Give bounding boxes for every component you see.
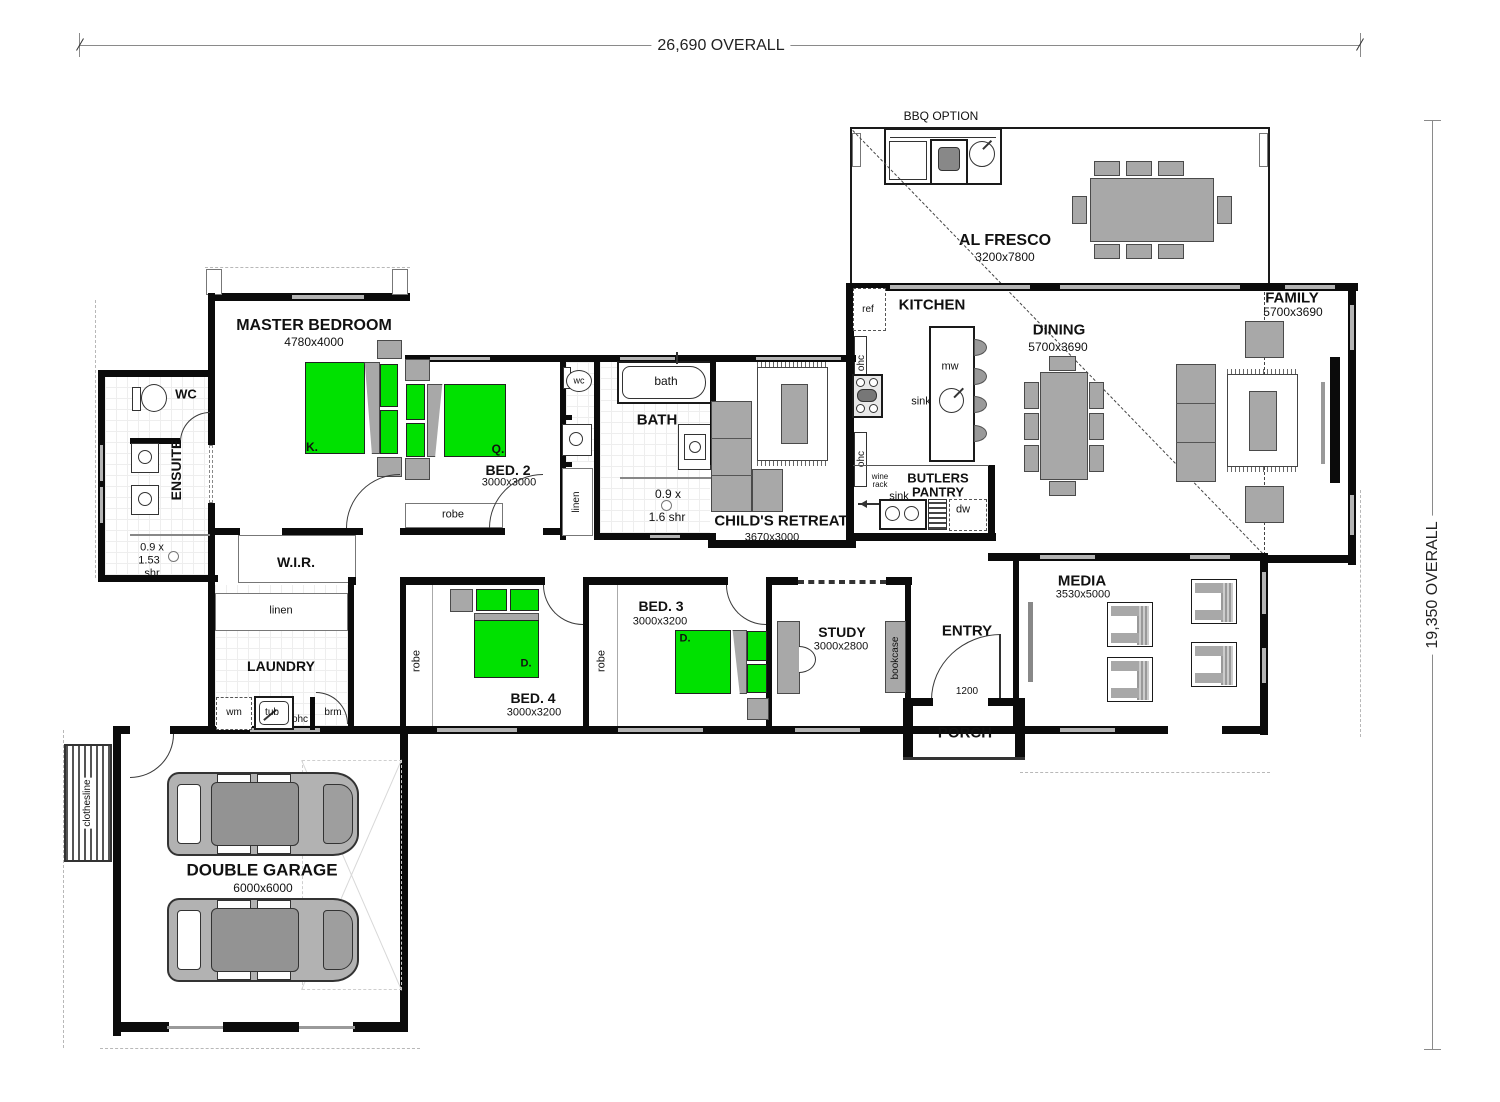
sofa-cushion-line [1176, 442, 1216, 443]
bed-pillow [747, 664, 767, 693]
door-opening [728, 577, 766, 585]
coffee-table [1249, 391, 1277, 451]
ohc-label: ohc [292, 715, 308, 725]
butlers-pantry-label-2: PANTRY [912, 486, 964, 499]
window-jamb [1259, 133, 1268, 167]
bed3-label: BED. 3 [638, 599, 683, 613]
rug-fringe [1227, 467, 1298, 472]
linen-label: linen [572, 491, 582, 512]
robe-label: robe [412, 650, 423, 672]
outdoor-chair [1158, 161, 1184, 176]
burner [869, 378, 878, 387]
dining-chair [1049, 356, 1076, 371]
bath-shower-size-2: 1.6 shr [649, 511, 686, 523]
bedside-table [450, 589, 473, 612]
shower-screen [130, 534, 210, 536]
outdoor-chair [1094, 161, 1120, 176]
media-label: MEDIA [1058, 574, 1106, 589]
wall [1222, 726, 1268, 734]
recliner-arm [1195, 646, 1223, 656]
wall [560, 462, 572, 467]
shower-rose [661, 500, 672, 511]
window [618, 728, 703, 732]
sofa-cushion-line [711, 438, 752, 439]
door-opening [240, 528, 282, 535]
microwave-label: mw [941, 362, 958, 373]
tv-screen [1028, 602, 1033, 682]
toilet-tank [132, 387, 141, 411]
basin-bowl [689, 441, 701, 453]
outdoor-chair [1094, 244, 1120, 259]
recliner [1107, 657, 1153, 702]
door-opening [363, 528, 400, 535]
ohc-label: ohc [857, 355, 867, 371]
car-bonnet [323, 910, 353, 970]
sofa-cushion-line [1176, 403, 1216, 404]
dining-table [1040, 372, 1088, 480]
dish-drainer [928, 499, 947, 530]
bathtub-label: bath [654, 375, 677, 387]
recliner-arm [1111, 633, 1139, 643]
stool [974, 368, 987, 385]
bedside-table [377, 340, 402, 359]
wall [583, 577, 589, 734]
family-label: FAMILY [1265, 291, 1319, 306]
window [1060, 285, 1240, 289]
door-arc [726, 585, 766, 625]
window [292, 295, 364, 299]
wall [560, 415, 572, 420]
wall [113, 726, 121, 1036]
dimension-tick [1424, 1049, 1441, 1050]
bed-fold [729, 630, 747, 694]
robe-label: robe [597, 650, 608, 672]
bed-king-label: K. [306, 441, 318, 453]
robe-label: robe [442, 510, 464, 521]
window [430, 357, 490, 360]
window [1285, 285, 1335, 289]
car-window [217, 900, 251, 909]
stool [974, 339, 987, 356]
overall-height-dimension: 19,350 OVERALL [1425, 515, 1441, 654]
porch-edge [903, 757, 1025, 760]
entry-door-width: 1200 [956, 687, 978, 697]
bedside-table [405, 458, 430, 480]
bath-shower-size-1: 0.9 x [655, 488, 681, 500]
wine-rack-label-2: rack [872, 481, 887, 489]
bed4-label: BED. 4 [510, 691, 555, 705]
dishwasher-label: dw [956, 505, 970, 516]
car-window [217, 845, 251, 854]
family-size: 5700x3690 [1263, 306, 1322, 318]
garage-door-panel [223, 1022, 299, 1032]
bath-label: BATH [637, 413, 678, 428]
wall [846, 533, 996, 541]
car-window [257, 900, 291, 909]
window [1350, 305, 1354, 350]
stool [974, 396, 987, 413]
bbq-sink [969, 141, 995, 167]
clothesline-label: clothesline [82, 777, 94, 828]
wall [98, 370, 215, 377]
recliner [1107, 602, 1153, 647]
dining-chair [1024, 413, 1039, 440]
door-arc [346, 474, 400, 528]
bbq-bench-line [890, 137, 996, 138]
outdoor-chair [1217, 196, 1232, 224]
dining-chair [1089, 413, 1104, 440]
kitchen-label: KITCHEN [899, 298, 966, 313]
door-opening [505, 528, 543, 535]
coffee-table [781, 384, 808, 444]
car-bonnet [323, 784, 353, 844]
porch-label: PORCH [938, 726, 992, 741]
sofa-l-vertical [711, 401, 752, 512]
bed-fold [427, 384, 445, 457]
dining-label: DINING [1033, 323, 1086, 338]
fridge-label: ref [862, 305, 874, 315]
master-bedroom-label: MASTER BEDROOM [236, 318, 392, 334]
arrow-head [856, 500, 867, 508]
bed-pillow [406, 384, 425, 420]
dining-chair [1089, 382, 1104, 409]
window [890, 285, 1030, 289]
outdoor-chair [1126, 244, 1152, 259]
door-opening [130, 726, 170, 734]
recliner-arm [1111, 606, 1139, 616]
bed4-size: 3000x3200 [507, 708, 561, 719]
bath-tap [676, 352, 678, 364]
desk [777, 621, 800, 694]
wall [310, 697, 315, 730]
car-window [217, 971, 251, 980]
window [100, 487, 103, 523]
dining-chair [1049, 481, 1076, 496]
car [167, 772, 359, 856]
car-window [217, 774, 251, 783]
study-size: 3000x2800 [814, 642, 868, 653]
shower-rose [168, 551, 179, 562]
burner [869, 404, 878, 413]
bed-pillow [406, 423, 425, 457]
burner [856, 404, 865, 413]
recliner-arm [1195, 583, 1223, 593]
garage-label: DOUBLE GARAGE [186, 862, 337, 879]
window [1190, 555, 1230, 559]
window-reveal [206, 269, 222, 295]
wc-small-label: wc [574, 377, 585, 386]
floor-plan: 26,690 OVERALL 19,350 OVERALL BBQ OPTION… [0, 0, 1500, 1102]
dining-chair [1024, 445, 1039, 472]
study-label: STUDY [818, 625, 865, 639]
tv-screen [1321, 382, 1325, 464]
robe-line [617, 585, 618, 726]
wall [400, 577, 406, 734]
opening [356, 577, 400, 585]
bookcase-label: bookcase [891, 637, 901, 680]
bench-line [853, 465, 989, 466]
bbq-option-label: BBQ OPTION [904, 110, 979, 122]
wall [353, 1022, 408, 1032]
cooktop-center [857, 389, 877, 402]
door-arc [130, 734, 174, 778]
eave-line [100, 1048, 420, 1049]
window [756, 357, 841, 360]
butlers-pantry-label-1: BUTLERS [907, 472, 968, 485]
sink-bowl [885, 506, 900, 521]
bed3-size: 3000x3200 [633, 617, 687, 628]
door-opening [545, 577, 583, 585]
bed-pillow [380, 364, 398, 407]
wall [1262, 555, 1356, 563]
tv-unit [1330, 357, 1340, 483]
wall [208, 533, 215, 733]
car-window [257, 971, 291, 980]
al-fresco-label: AL FRESCO [959, 233, 1051, 249]
overall-width-dimension: 26,690 OVERALL [651, 38, 790, 54]
recliner-arm [1111, 688, 1139, 698]
ensuite-shower-size-2: 1.53 [138, 556, 159, 567]
window [1350, 495, 1354, 535]
window-reveal [392, 269, 408, 295]
door-arc [543, 585, 583, 625]
childs-retreat-size: 3670x3000 [745, 533, 799, 544]
media-size: 3530x5000 [1056, 590, 1110, 601]
bed-pillow [380, 410, 398, 454]
outdoor-chair [1126, 161, 1152, 176]
basin-bowl [138, 492, 152, 506]
car-window [257, 774, 291, 783]
laundry-label: LAUNDRY [247, 659, 315, 673]
window [1262, 572, 1266, 614]
sink-label: sink [911, 397, 931, 408]
wall [348, 577, 354, 734]
washing-machine-label: wm [226, 708, 242, 718]
bedside-table [405, 359, 430, 381]
garage-size: 6000x6000 [233, 882, 292, 894]
shower-screen [620, 477, 711, 479]
master-bedroom-size: 4780x4000 [284, 336, 343, 348]
car-roof [211, 908, 299, 972]
window [650, 535, 680, 538]
bbq-plate [938, 147, 960, 171]
window [437, 728, 517, 732]
robe-line [432, 585, 433, 726]
wall [208, 726, 1018, 734]
tub-label: tub [265, 708, 279, 718]
dining-chair [1089, 445, 1104, 472]
basin-bowl [569, 432, 583, 446]
eave-line [1020, 772, 1270, 773]
recliner [1191, 642, 1237, 687]
bedside-table [747, 698, 769, 720]
outdoor-chair [1072, 196, 1087, 224]
basin-bowl [138, 450, 152, 464]
window [1262, 648, 1266, 683]
bed-pillow [476, 589, 507, 611]
wc-label: WC [175, 388, 197, 401]
window [1040, 555, 1095, 559]
car-rear-window [177, 910, 201, 970]
window [100, 445, 103, 481]
eave-line [95, 300, 96, 578]
recliner-arm [1195, 610, 1223, 620]
toilet-bowl [141, 384, 167, 412]
bed-double-label: D. [521, 659, 532, 670]
recliner-arm [1195, 673, 1223, 683]
wir-label: W.I.R. [277, 555, 315, 569]
nib-wall-dashed [798, 580, 886, 584]
armchair [1245, 321, 1284, 358]
bed2-label: BED. 2 [485, 463, 530, 477]
sink-bowl [904, 506, 919, 521]
car-roof [211, 782, 299, 846]
wall [988, 465, 995, 541]
car-rear-window [177, 784, 201, 844]
eave-line [205, 267, 410, 268]
stool [974, 425, 987, 442]
recliner-arm [1111, 661, 1139, 671]
armchair [1245, 486, 1284, 523]
dimension-tick [1424, 120, 1441, 121]
bed-pillow [747, 631, 767, 661]
window [1060, 728, 1115, 732]
sofa [1176, 364, 1216, 482]
window [620, 357, 675, 360]
wall [895, 577, 911, 585]
car [167, 898, 359, 982]
wall [903, 698, 913, 760]
entry-door-leaf [999, 634, 1001, 700]
rug-fringe [757, 461, 828, 466]
outdoor-chair [1158, 244, 1184, 259]
recliner [1191, 579, 1237, 624]
dining-chair [1024, 382, 1039, 409]
car-window [257, 845, 291, 854]
sofa-l-horizontal [752, 469, 783, 512]
al-fresco-size: 3200x7800 [975, 251, 1034, 263]
sofa-cushion-line [711, 475, 752, 476]
bed-queen-label: Q. [492, 443, 505, 455]
dining-size: 5700x3690 [1028, 341, 1087, 353]
wall [113, 1022, 169, 1032]
ensuite-label: ENSUITE [169, 440, 183, 501]
linen-label: linen [269, 606, 292, 617]
childs-retreat-label: CHILD'S RETREAT [714, 514, 847, 529]
eave-line [1360, 490, 1361, 737]
ensuite-shower-size-1: 0.9 x [140, 543, 164, 554]
ensuite-shower-size-3: shr [144, 569, 159, 580]
bed-double-label: D. [680, 634, 691, 645]
window [795, 728, 860, 732]
cavity-slider [209, 445, 213, 503]
bed-pillow [510, 589, 539, 611]
burner [856, 378, 865, 387]
outdoor-table [1090, 178, 1214, 242]
